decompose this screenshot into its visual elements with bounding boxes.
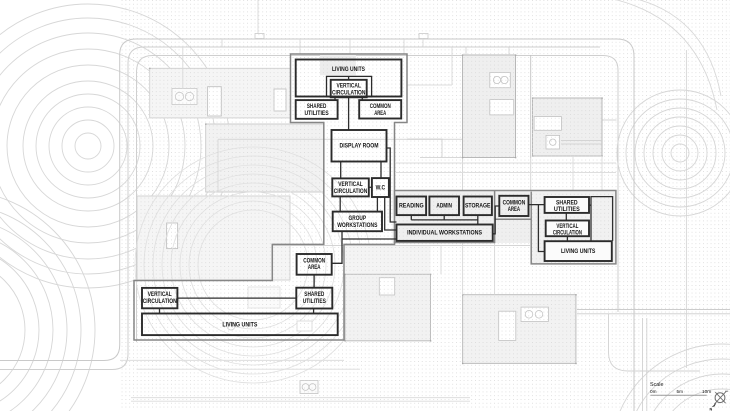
svg-text:AREA: AREA — [508, 206, 521, 213]
svg-text:LIVING UNITS: LIVING UNITS — [561, 248, 595, 255]
svg-text:CIRCULATION: CIRCULATION — [332, 89, 366, 96]
svg-text:WORKSTATIONS: WORKSTATIONS — [337, 222, 377, 229]
svg-text:UTILITIES: UTILITIES — [303, 298, 326, 305]
svg-text:Scale: Scale — [650, 382, 664, 388]
svg-text:CIRCULATION: CIRCULATION — [143, 298, 177, 305]
svg-text:UTILITIES: UTILITIES — [554, 206, 580, 213]
svg-text:STORAGE: STORAGE — [465, 203, 491, 210]
svg-text:LIVING UNITS: LIVING UNITS — [332, 66, 365, 73]
svg-text:AREA: AREA — [374, 110, 386, 117]
svg-text:10m: 10m — [702, 389, 711, 394]
svg-text:5m: 5m — [677, 389, 684, 394]
svg-text:UTILITIES: UTILITIES — [304, 110, 328, 117]
svg-text:0m: 0m — [650, 389, 657, 394]
svg-text:CIRCULATION: CIRCULATION — [334, 188, 368, 195]
svg-text:AREA: AREA — [308, 264, 321, 271]
svg-text:LIVING UNITS: LIVING UNITS — [222, 321, 257, 328]
svg-text:W.C: W.C — [376, 185, 386, 192]
svg-text:CIRCULATION: CIRCULATION — [553, 230, 582, 237]
svg-text:READING: READING — [399, 203, 424, 210]
svg-text:INDIVIDUAL WORKSTATIONS: INDIVIDUAL WORKSTATIONS — [407, 230, 482, 237]
svg-text:N: N — [710, 408, 713, 411]
svg-text:DISPLAY ROOM: DISPLAY ROOM — [340, 143, 379, 150]
svg-text:ADMIN: ADMIN — [436, 203, 452, 210]
